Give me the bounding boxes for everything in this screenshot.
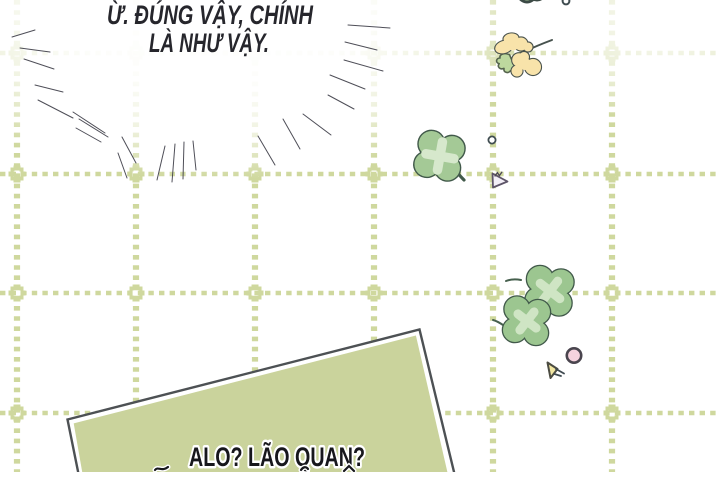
svg-text:ALO? LÃO QUAN?: ALO? LÃO QUAN? xyxy=(189,442,365,472)
svg-text:LÀ NHƯ VẬY.: LÀ NHƯ VẬY. xyxy=(149,27,269,58)
svg-text:Ừ. ĐÚNG VẬY, CHÍNH: Ừ. ĐÚNG VẬY, CHÍNH xyxy=(107,0,313,30)
